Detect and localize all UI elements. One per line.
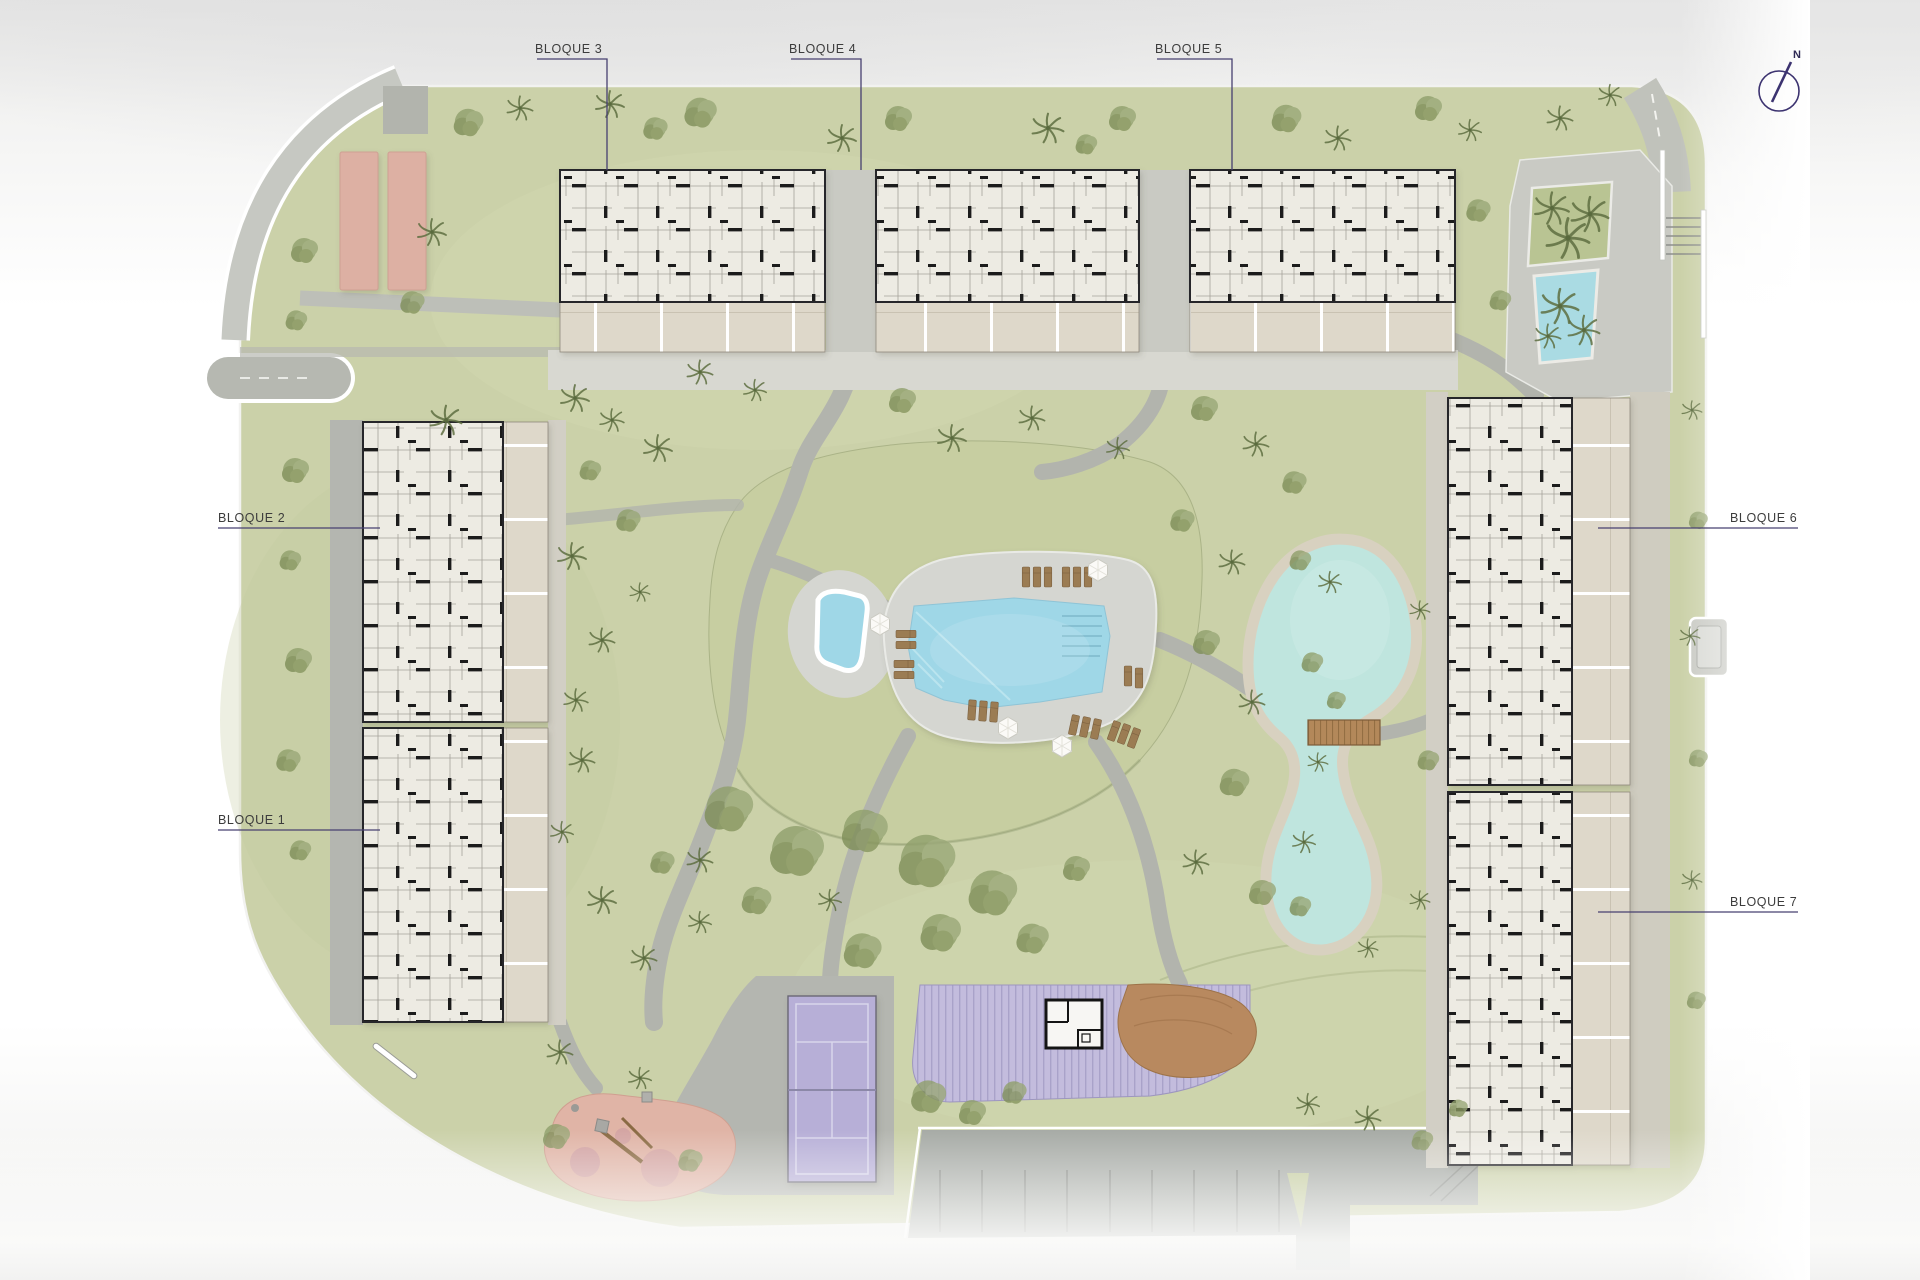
right-fade [1680, 0, 1810, 1280]
building-bloque-5[interactable] [1190, 170, 1455, 352]
label-bloque-1[interactable]: BLOQUE 1 [218, 813, 285, 827]
walkway-gap [1138, 170, 1190, 352]
gravel-strip-right [1630, 392, 1670, 1168]
stair-railing [1660, 150, 1665, 260]
bottom-fade [0, 1130, 1920, 1280]
walkway-bloque-6-7 [1426, 392, 1448, 1168]
building-bloque-1[interactable] [363, 728, 548, 1022]
masterplan-canvas: N BLOQUE 3 BLOQUE 4 BLOQUE 5 BLOQUE 2 BL… [0, 0, 1920, 1280]
walkway-gap [826, 170, 876, 352]
compass-n-label: N [1793, 49, 1801, 61]
gravel-strip-left [548, 420, 566, 1025]
label-bloque-6[interactable]: BLOQUE 6 [1730, 511, 1797, 525]
label-bloque-5[interactable]: BLOQUE 5 [1155, 42, 1222, 56]
label-bloque-7[interactable]: BLOQUE 7 [1730, 895, 1797, 909]
building-bloque-2[interactable] [363, 422, 548, 722]
building-bloque-3[interactable] [560, 170, 825, 352]
wooden-bridge [1308, 720, 1380, 745]
building-bloque-4[interactable] [876, 170, 1139, 352]
walkway-bloque-2-1 [330, 420, 363, 1025]
planter [1528, 182, 1612, 266]
water-highlight [930, 614, 1090, 686]
plaza-water-feature [1534, 270, 1598, 363]
pool-bar [1046, 1000, 1102, 1048]
walkway-top-row [548, 350, 1458, 390]
building-bloque-7[interactable] [1448, 792, 1630, 1165]
label-bloque-4[interactable]: BLOQUE 4 [789, 42, 856, 56]
label-bloque-3[interactable]: BLOQUE 3 [535, 42, 602, 56]
site-plan-svg: N [0, 0, 1920, 1280]
label-bloque-2[interactable]: BLOQUE 2 [218, 511, 285, 525]
kids-pool [817, 591, 867, 670]
building-bloque-6[interactable] [1448, 398, 1630, 785]
